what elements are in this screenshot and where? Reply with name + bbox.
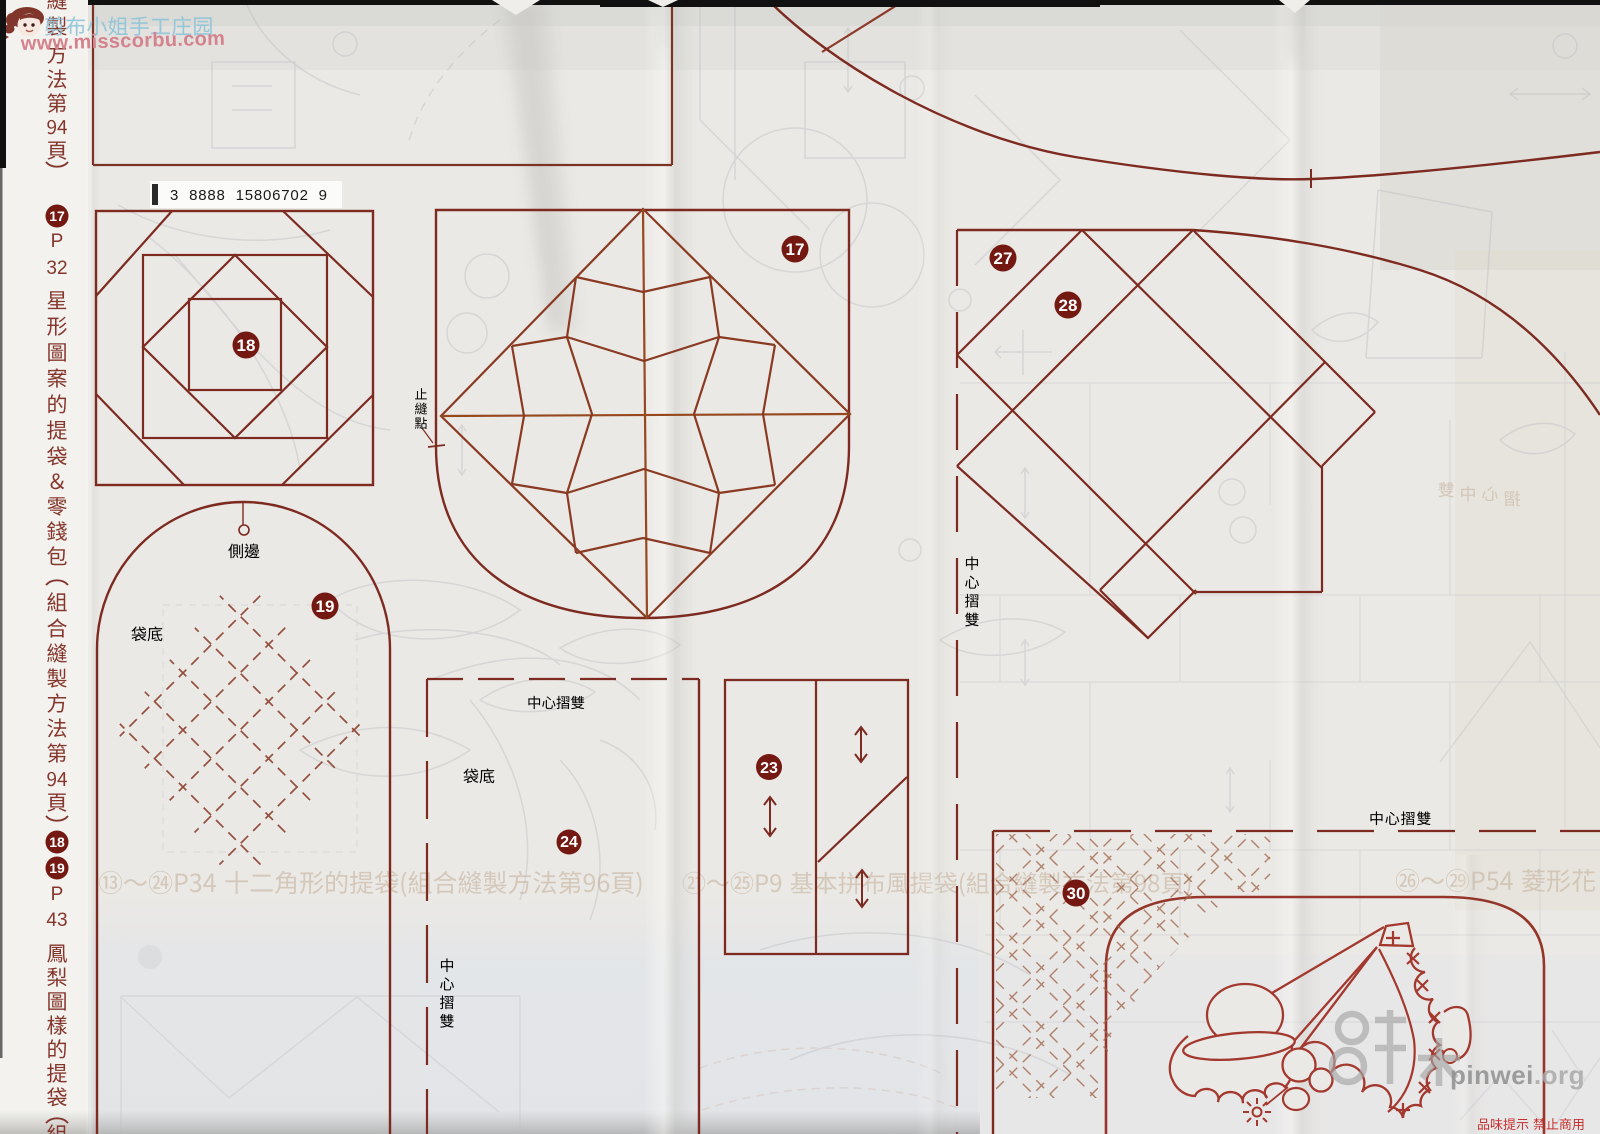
svg-text:18: 18 [237,336,256,355]
svg-text:P: P [51,884,64,905]
svg-text:pinwei.org: pinwei.org [1450,1060,1585,1090]
svg-text:18: 18 [49,834,65,850]
svg-text:17: 17 [786,240,805,259]
svg-text:19: 19 [316,597,335,616]
svg-text:43: 43 [46,910,67,931]
svg-text:3 8888 15806702 9: 3 8888 15806702 9 [170,187,328,204]
svg-text:27: 27 [994,249,1013,268]
svg-text:28: 28 [1059,296,1078,315]
svg-text:24: 24 [560,834,578,851]
svg-text:19: 19 [49,860,65,876]
svg-text:30: 30 [1067,884,1086,903]
svg-text:23: 23 [760,760,778,777]
svg-text:P: P [51,231,64,252]
svg-text:17: 17 [49,208,65,224]
svg-text:32: 32 [46,258,67,279]
